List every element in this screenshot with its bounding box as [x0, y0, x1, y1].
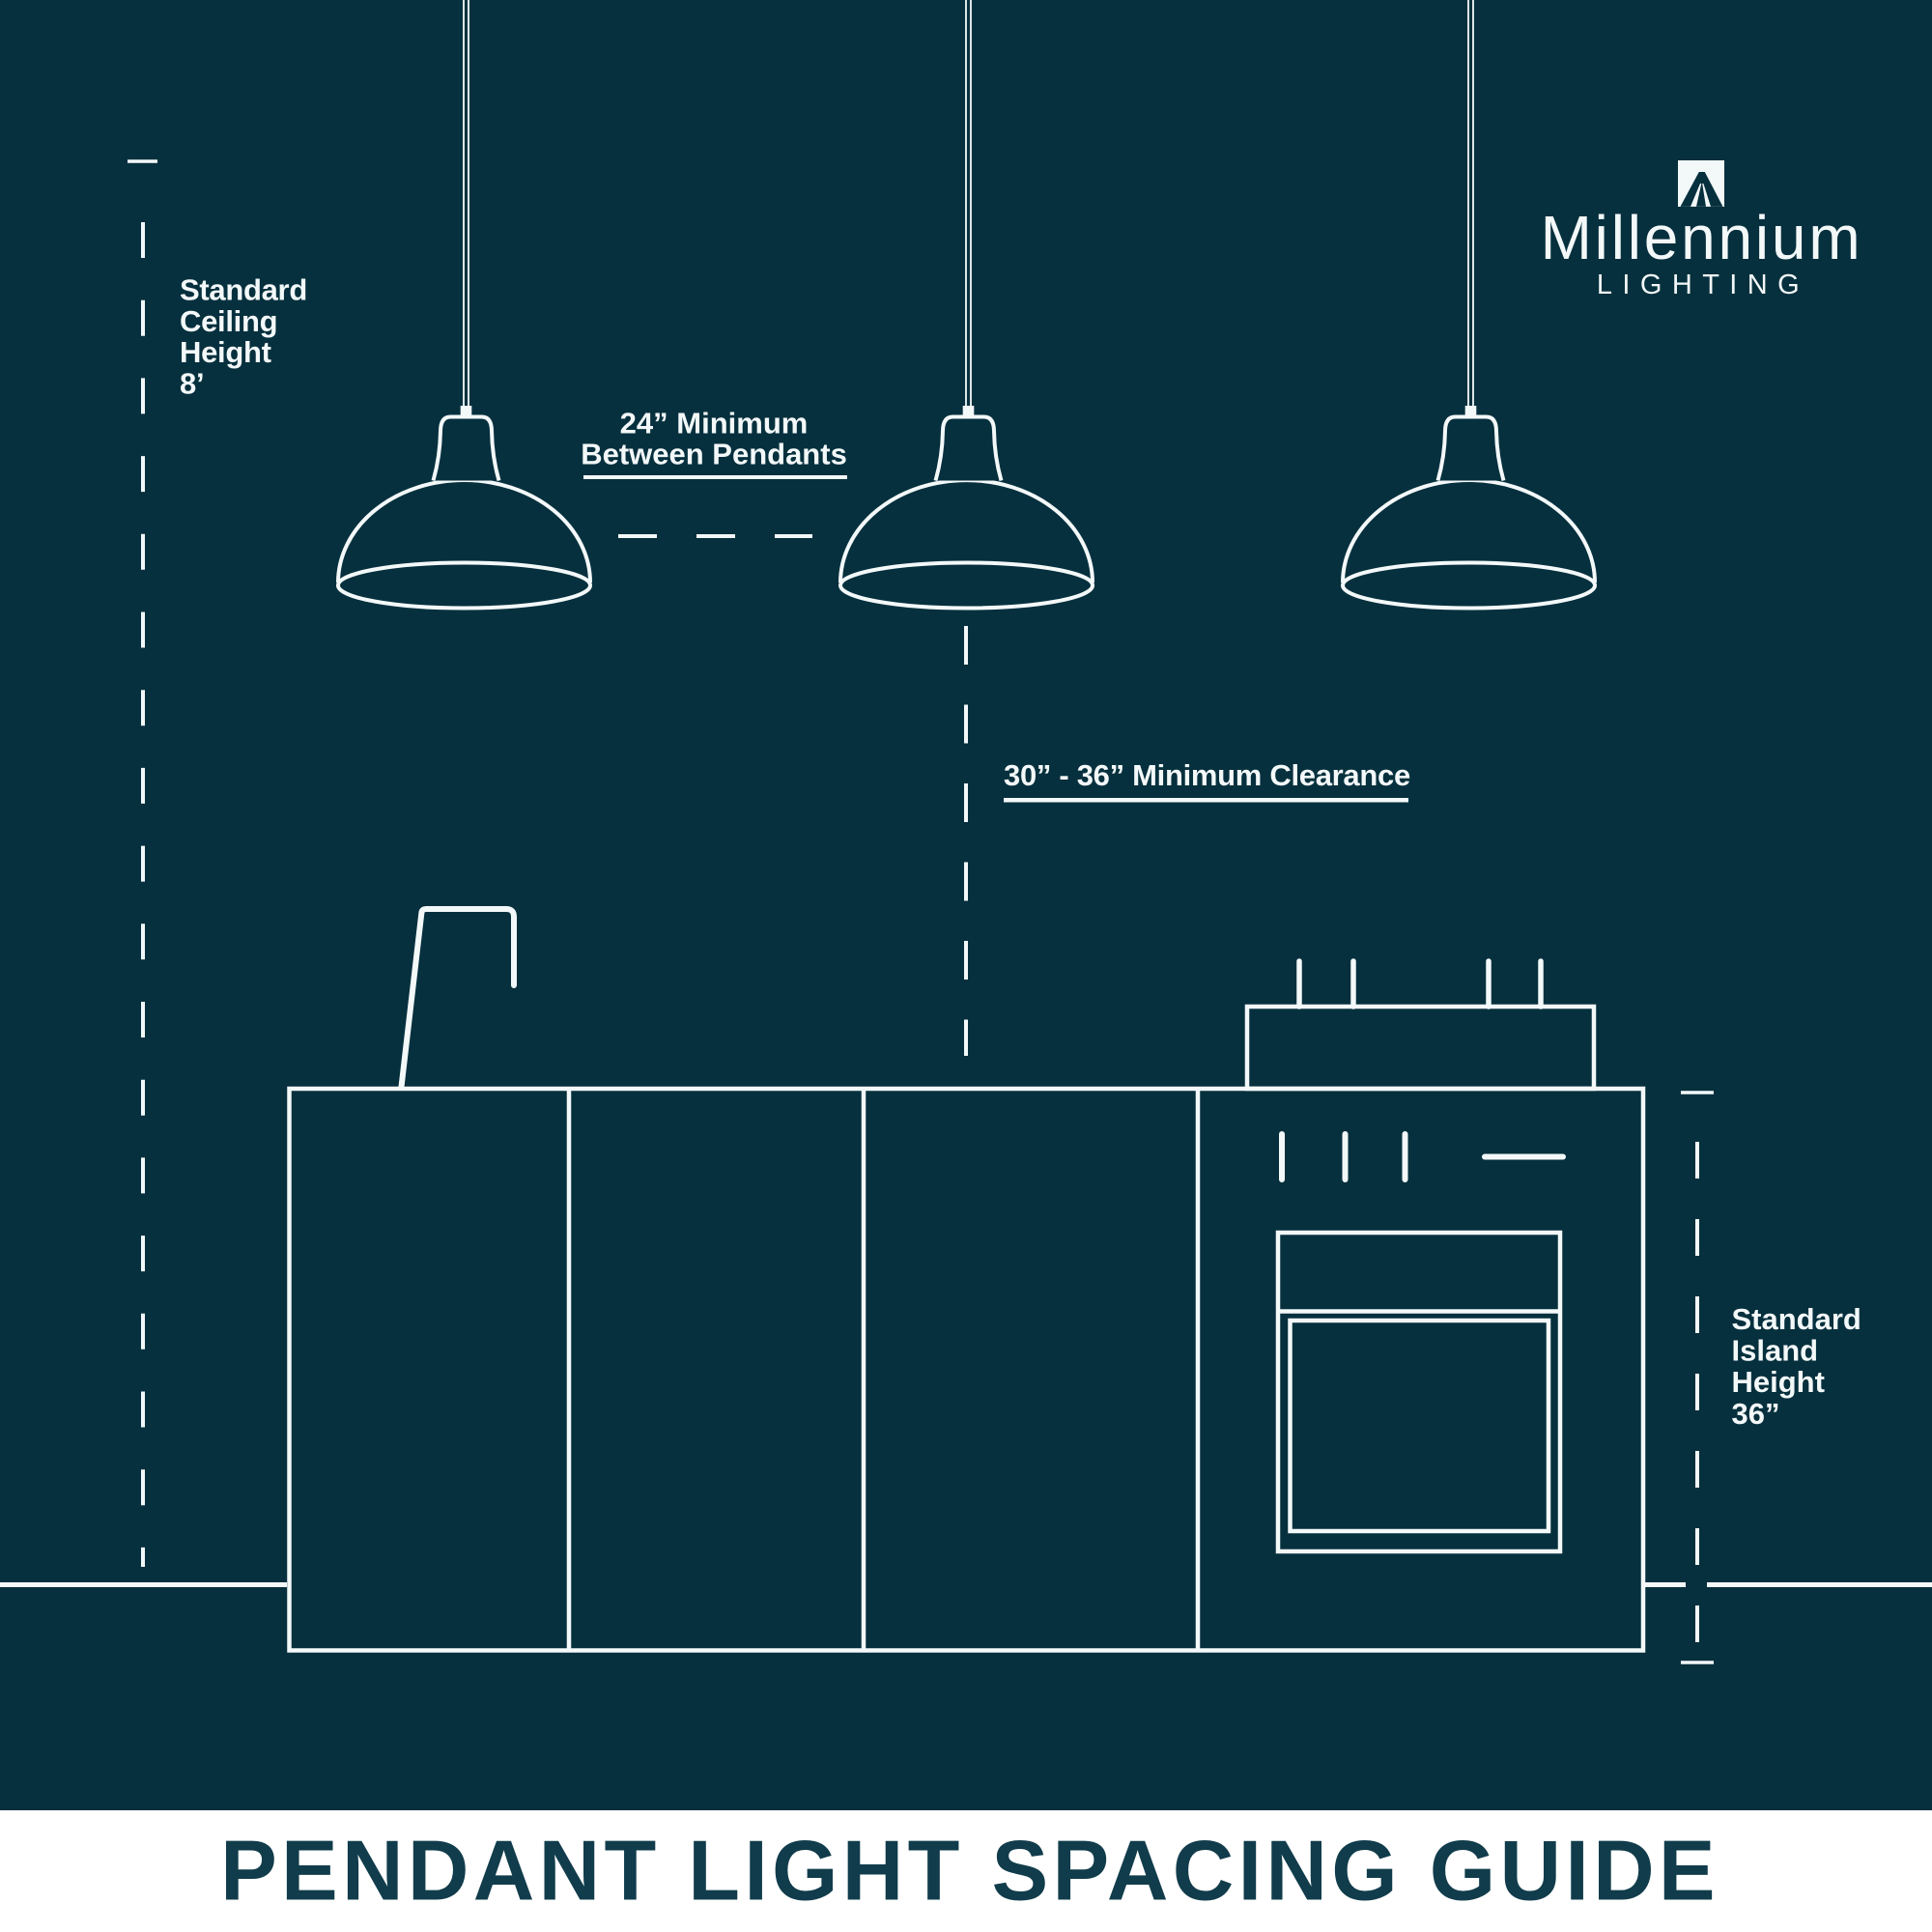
svg-text:Between Pendants: Between Pendants [581, 438, 847, 471]
svg-text:24” Minimum: 24” Minimum [620, 407, 809, 440]
svg-text:Standard: Standard [180, 273, 307, 307]
svg-text:PENDANT LIGHT SPACING GUIDE: PENDANT LIGHT SPACING GUIDE [220, 1823, 1719, 1918]
svg-text:LIGHTING: LIGHTING [1597, 270, 1809, 300]
svg-text:8’: 8’ [180, 367, 204, 401]
svg-text:Island: Island [1732, 1334, 1819, 1368]
svg-text:Standard: Standard [1732, 1302, 1861, 1336]
svg-text:Height: Height [180, 335, 271, 369]
svg-text:Height: Height [1732, 1365, 1825, 1399]
svg-text:36”: 36” [1732, 1397, 1780, 1431]
svg-text:30” - 36” Minimum Clearance: 30” - 36” Minimum Clearance [1004, 758, 1410, 792]
svg-text:Millennium: Millennium [1541, 203, 1863, 272]
svg-text:Ceiling: Ceiling [180, 304, 277, 338]
